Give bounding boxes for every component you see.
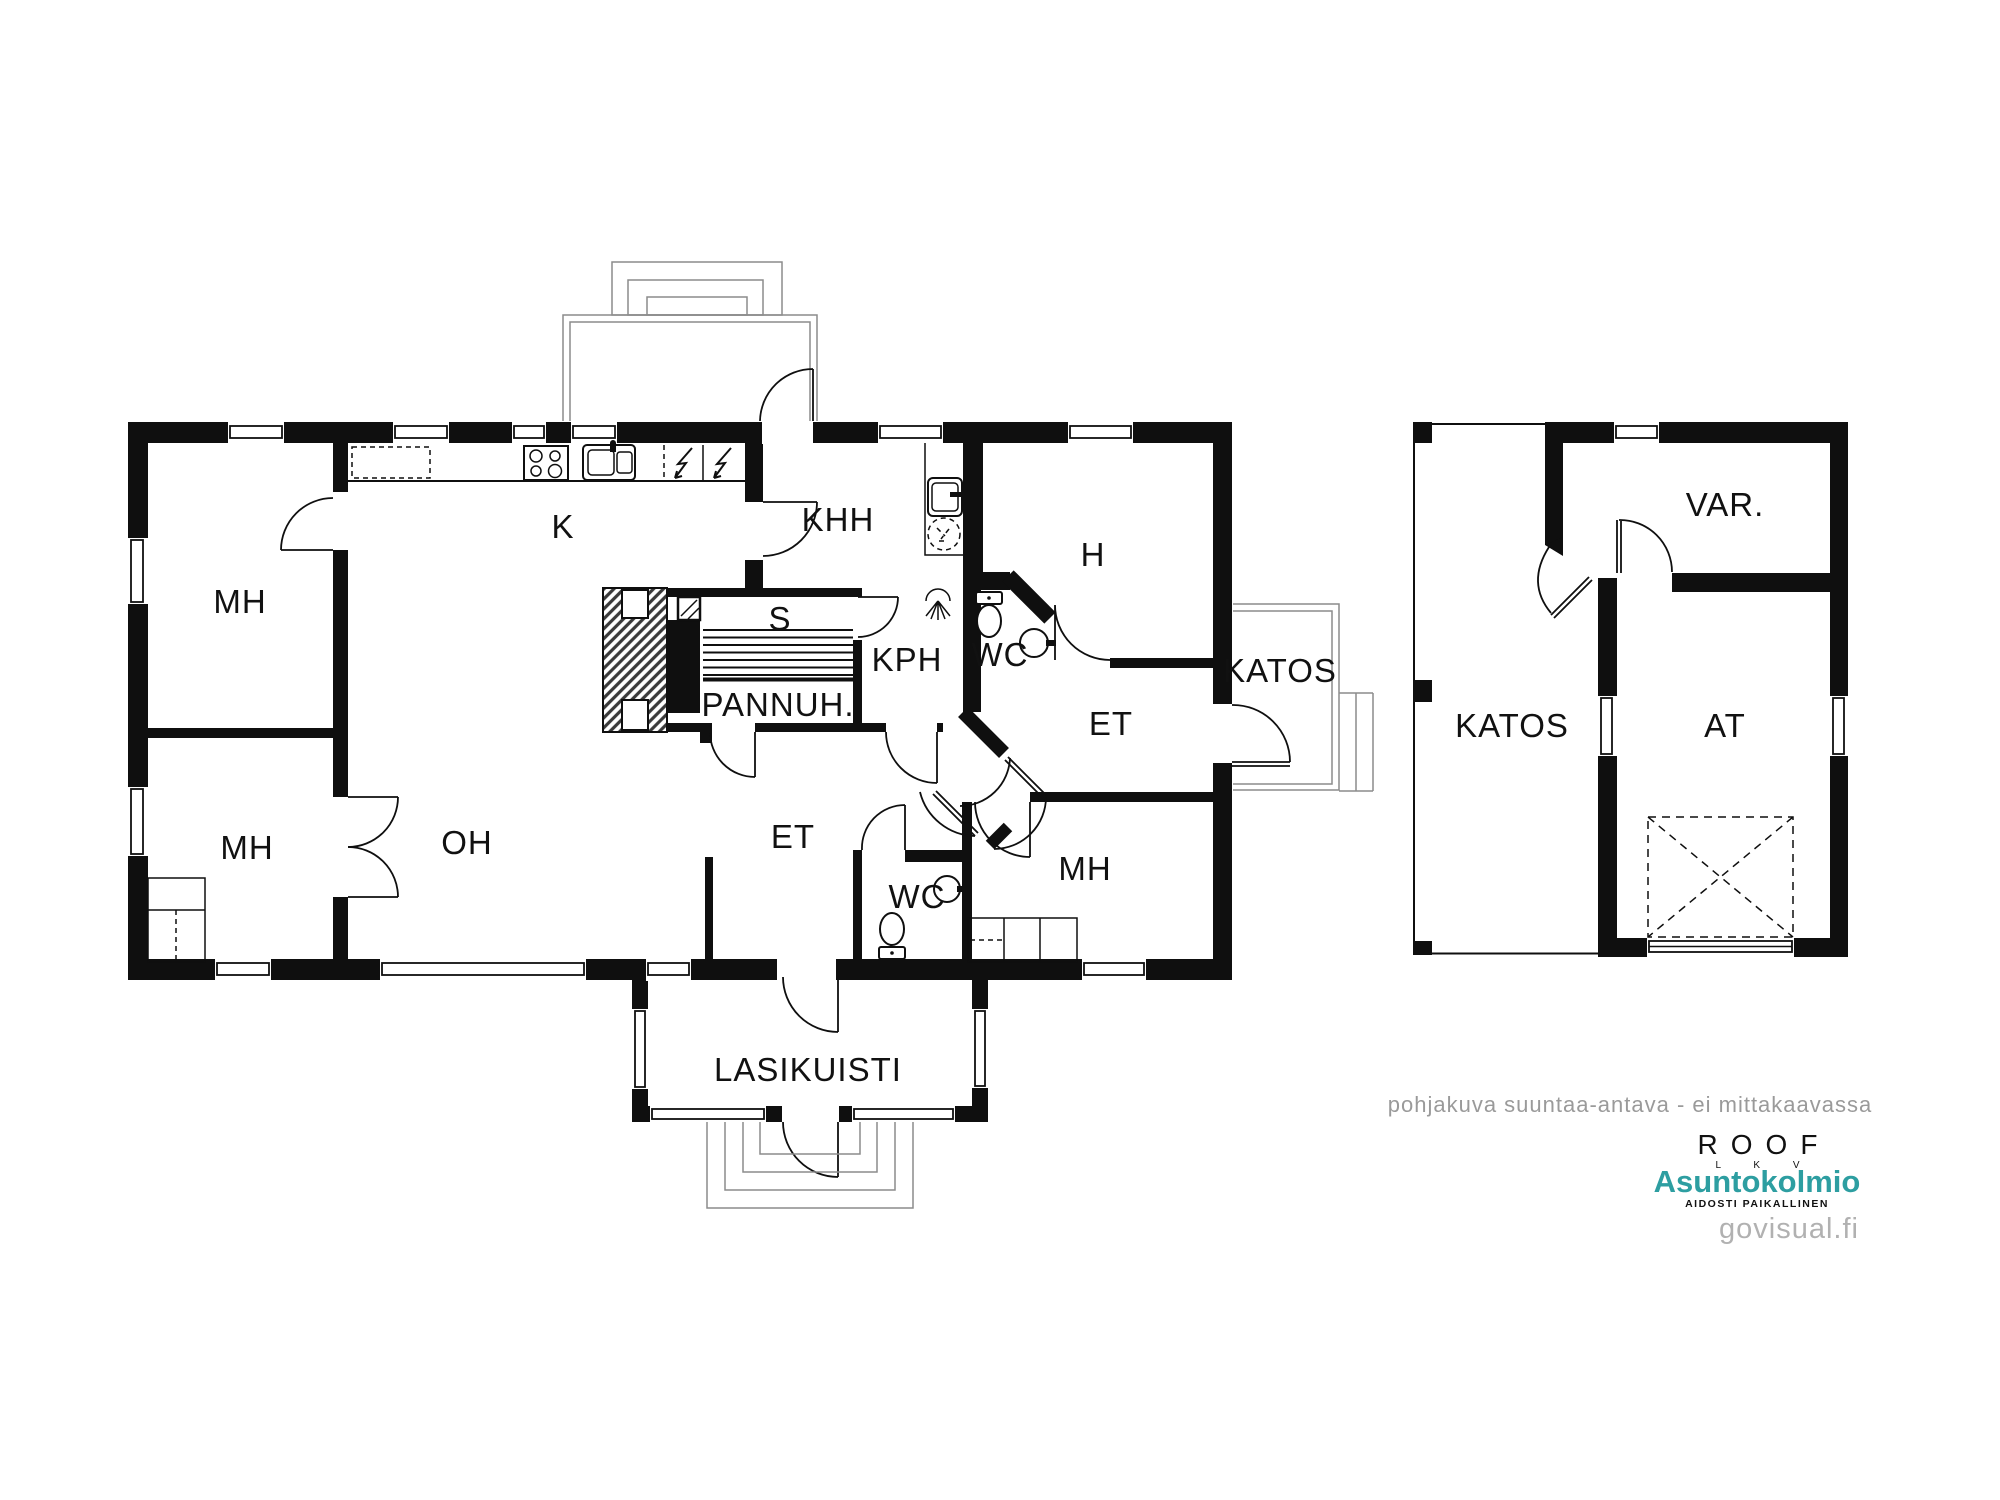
closet-icon: [148, 878, 205, 962]
wardrobe-icon: [968, 918, 1077, 962]
roof-lkv-logo: ROOF: [1698, 1129, 1831, 1160]
room-label-at: AT: [1704, 707, 1746, 744]
washing-machine-icon: [928, 518, 960, 550]
asuntokolmio-tagline: AIDOSTI PAIKALLINEN: [1685, 1198, 1829, 1210]
footer: pohjakuva suuntaa-antava - ei mittakaava…: [1388, 1092, 1872, 1245]
floor-plan-drawing: MH MH OH K KHH S PANNUH. KPH WC H ET ET …: [0, 0, 2000, 1500]
room-label-wc-top: WC: [972, 636, 1029, 673]
sauna-stove-icon: [678, 597, 700, 620]
toilet-icon: [976, 592, 1002, 637]
room-label-et-right: ET: [1089, 705, 1133, 742]
sauna-benches-icon: [703, 630, 853, 680]
room-label-wc-bottom: WC: [889, 878, 946, 915]
room-label-mh-bottom-right: MH: [1058, 850, 1111, 887]
room-label-pannuh: PANNUH.: [701, 686, 854, 723]
disclaimer-text: pohjakuva suuntaa-antava - ei mittakaava…: [1388, 1092, 1872, 1117]
room-label-kph: KPH: [872, 641, 943, 678]
katos-outline: [1233, 604, 1373, 791]
kitchen-sink-icon: [583, 440, 635, 480]
garage-walls: [1413, 422, 1848, 957]
garage-door-icon: [1648, 817, 1793, 952]
stove-icon: [524, 446, 568, 480]
room-label-khh: KHH: [802, 501, 875, 538]
room-label-h: H: [1081, 536, 1106, 573]
main-house-windows: [131, 426, 1144, 1119]
room-label-katos-garage: KATOS: [1455, 707, 1569, 744]
terrace-outline-icon: [563, 262, 817, 421]
room-label-lasikuisti: LASIKUISTI: [714, 1051, 902, 1088]
room-label-katos-main: KATOS: [1223, 652, 1337, 689]
room-label-mh-top-left: MH: [213, 583, 266, 620]
utility-sink-icon: [928, 478, 962, 516]
room-label-k: K: [551, 508, 574, 545]
asuntokolmio-logo: Asuntokolmio: [1654, 1164, 1861, 1199]
floor-plan-page: MH MH OH K KHH S PANNUH. KPH WC H ET ET …: [0, 0, 2000, 1500]
room-label-var: VAR.: [1686, 486, 1765, 523]
entrance-steps-icon: [707, 1122, 913, 1208]
toilet-icon: [879, 913, 905, 959]
room-label-et-center: ET: [771, 818, 815, 855]
room-label-s: S: [768, 600, 791, 637]
room-label-oh: OH: [441, 824, 493, 861]
govisual-watermark: govisual.fi: [1719, 1213, 1859, 1245]
main-house-walls: [128, 422, 1232, 1122]
shower-icon: [926, 589, 950, 620]
room-label-mh-mid-left: MH: [220, 829, 273, 866]
main-house-openings: [127, 421, 1233, 1123]
